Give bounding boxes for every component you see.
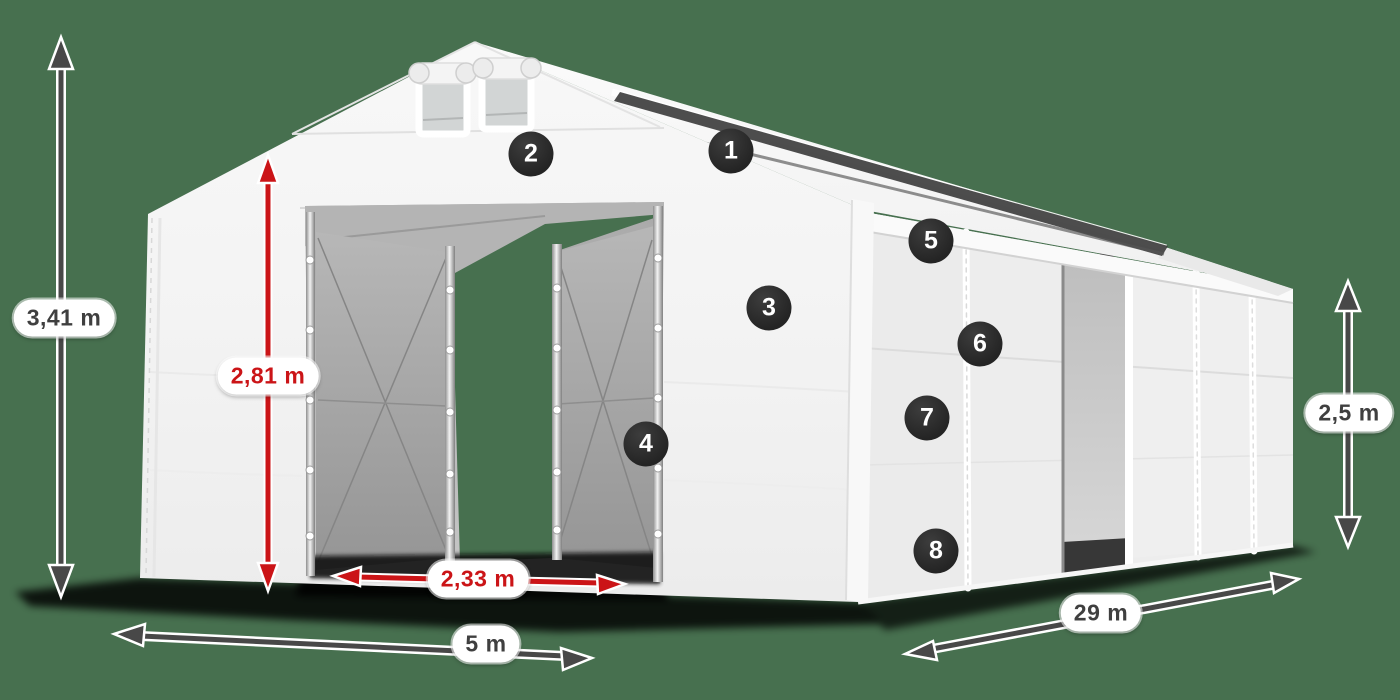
- part-badge-7: 7: [905, 396, 950, 441]
- side-height-label: 2,5 m: [1305, 395, 1392, 432]
- entrance-door-panel-right: [556, 226, 656, 568]
- entrance-door-panel-left: [316, 232, 448, 570]
- part-badge-8: 8: [914, 529, 959, 574]
- front-entrance-interior: [305, 202, 664, 584]
- part-badge-2: 2: [509, 132, 554, 177]
- tent-illustration: [0, 0, 1400, 700]
- part-badge-6: 6: [958, 322, 1003, 367]
- part-badge-5: 5: [909, 219, 954, 264]
- total-height-label: 3,41 m: [14, 300, 115, 337]
- side-door-opening: [1062, 235, 1130, 575]
- gable-vent-right: [473, 58, 541, 129]
- side-length-label: 29 m: [1061, 595, 1141, 632]
- gable-vent-left: [409, 63, 476, 134]
- part-badge-3: 3: [747, 286, 792, 331]
- front-width-label: 5 m: [452, 626, 519, 663]
- part-badge-4: 4: [624, 422, 669, 467]
- tent-dimension-diagram: 1 2 3 4 5 6 7 8 3,41 m 2,81 m 2,33 m 5 m…: [0, 0, 1400, 700]
- part-badge-1: 1: [709, 129, 754, 174]
- entrance-height-label: 2,81 m: [218, 358, 319, 395]
- front-width-arrow: [114, 624, 592, 670]
- entrance-width-label: 2,33 m: [428, 561, 529, 598]
